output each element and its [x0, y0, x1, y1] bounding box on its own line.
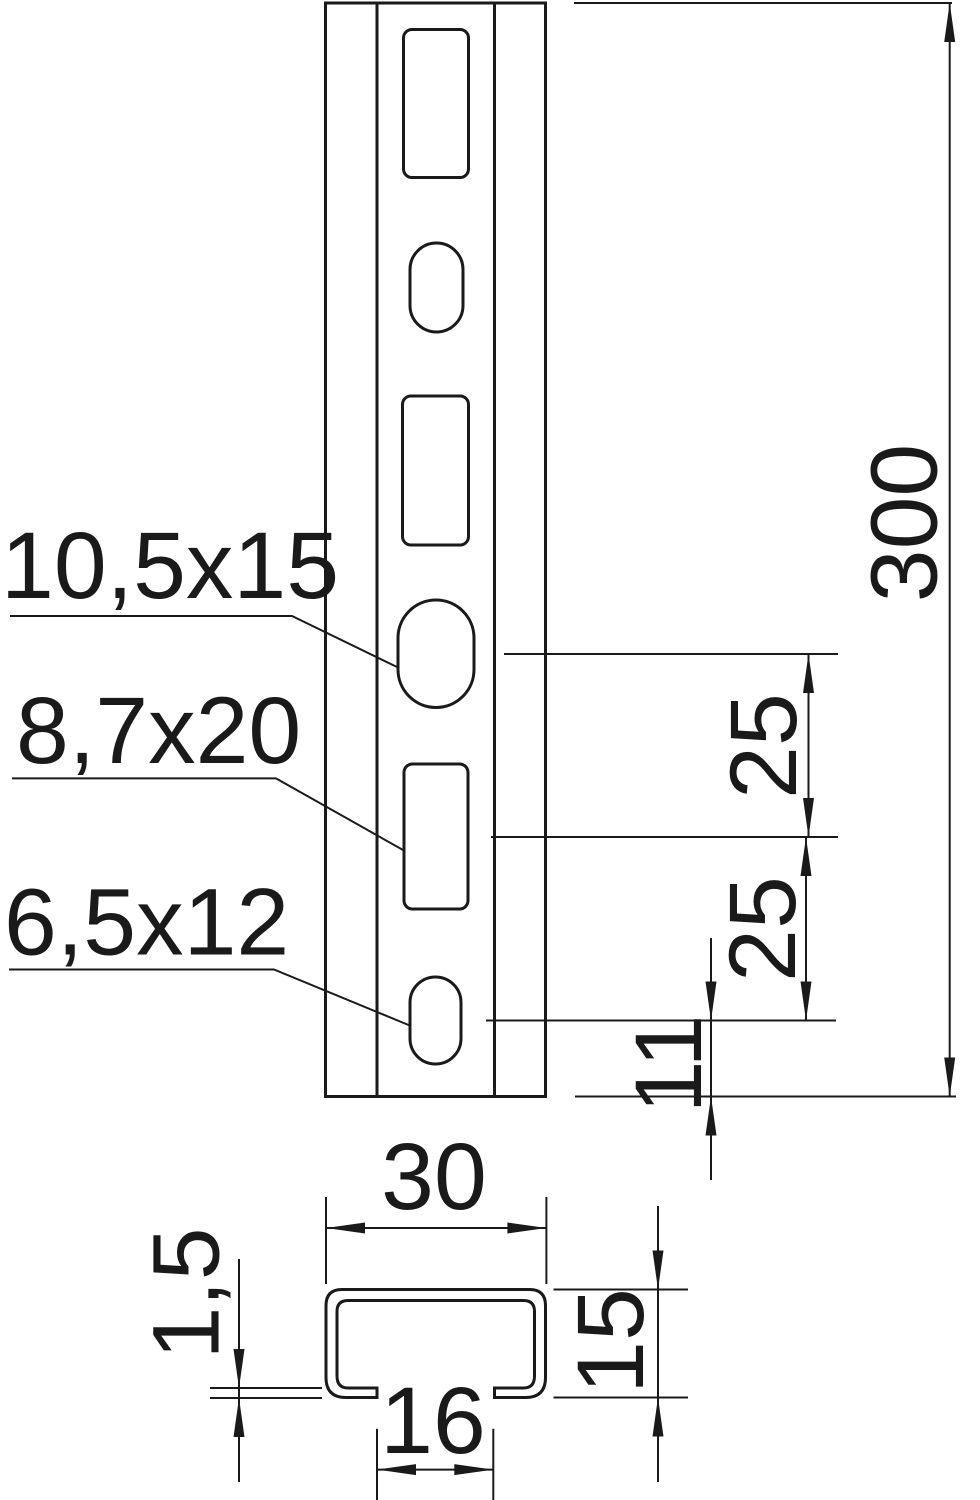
svg-text:30: 30 [381, 1124, 487, 1230]
svg-text:16: 16 [380, 1368, 486, 1474]
svg-text:25: 25 [711, 693, 817, 799]
svg-text:25: 25 [710, 876, 816, 982]
svg-text:8,7x20: 8,7x20 [16, 678, 301, 784]
svg-text:10,5x15: 10,5x15 [1, 513, 339, 619]
svg-text:6,5x12: 6,5x12 [4, 870, 289, 976]
svg-text:15: 15 [558, 1288, 664, 1394]
svg-text:300: 300 [852, 444, 958, 603]
svg-text:1,5: 1,5 [134, 1227, 240, 1359]
svg-text:11: 11 [616, 1015, 722, 1114]
